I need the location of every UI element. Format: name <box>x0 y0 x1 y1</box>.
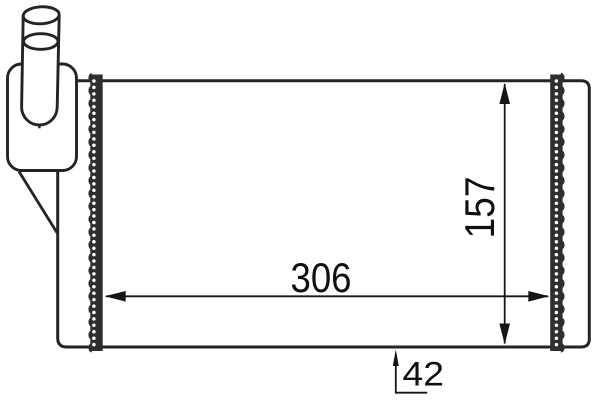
svg-text:306: 306 <box>291 254 352 301</box>
svg-text:42: 42 <box>403 356 445 394</box>
svg-text:157: 157 <box>456 177 503 239</box>
